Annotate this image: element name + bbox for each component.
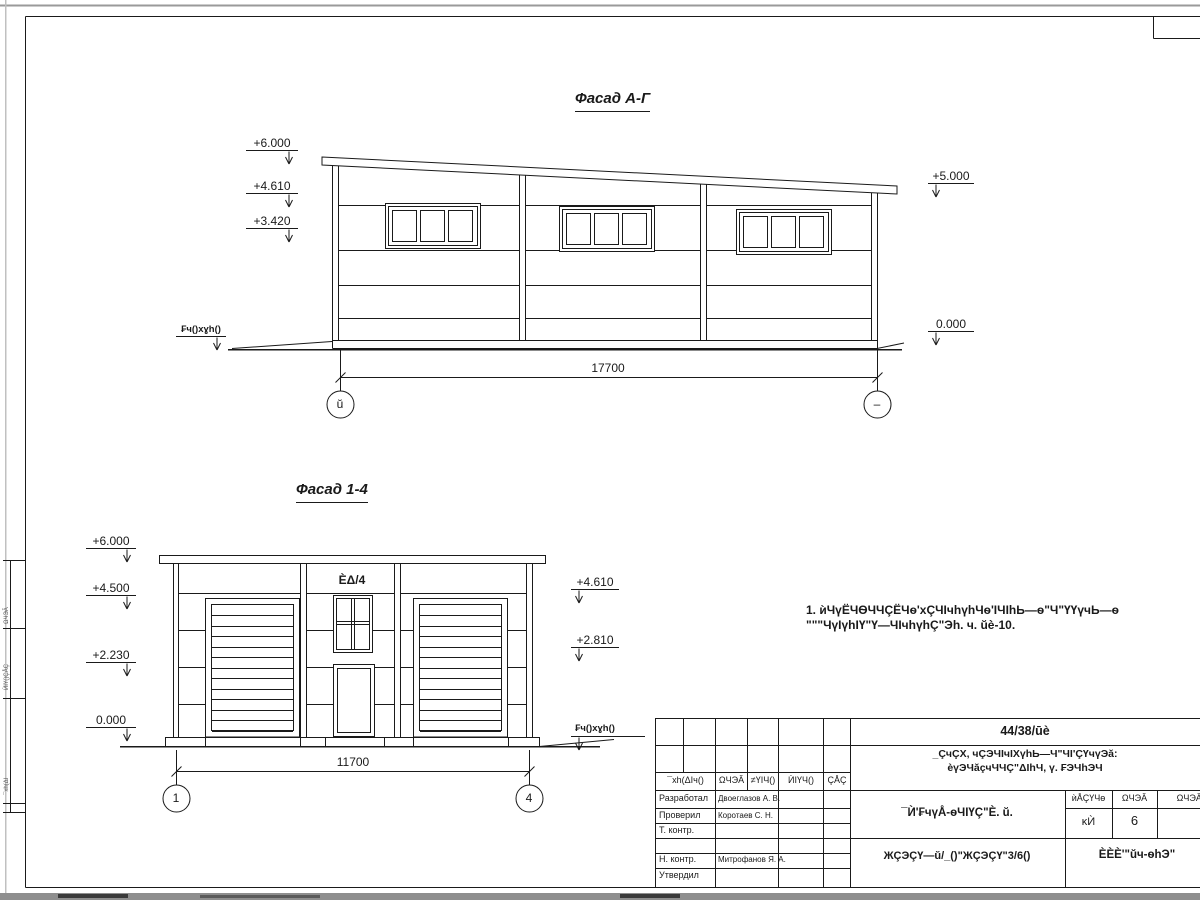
signature-role: Проверил — [659, 811, 700, 821]
axis-bubble-label: 1 — [162, 792, 190, 805]
ground-level-label: ₣ч()хɣh() — [171, 325, 231, 335]
doc-col-header: ¯хh(ΔІч() — [656, 776, 715, 786]
signature-role: Т. контр. — [659, 826, 694, 836]
facade-14-center-window — [334, 596, 373, 653]
project-code: 44/38/ūè — [850, 725, 1200, 739]
signature-role: Разработал — [659, 794, 708, 804]
facade-ag-roof — [322, 157, 897, 194]
scan-edge-artifact — [620, 894, 680, 898]
project-name-line-2: èүЭЧăçчЧЧÇ"ΔІhЧ, ү. ₣ЭЧhЭЧ — [852, 763, 1198, 775]
axis-bubble-label: 4 — [515, 792, 543, 805]
doc-col-header: ΩЧЭĂ — [716, 776, 747, 786]
axis-bubble-label: ŭ — [326, 398, 354, 411]
stage-value: ĸЍ — [1066, 816, 1111, 828]
stage-col-header: ѝÅÇҮЧѳ — [1066, 794, 1111, 804]
facade-ag-base — [228, 341, 904, 350]
facade-14-base — [120, 738, 614, 747]
signature-role: Утвердил — [659, 871, 699, 881]
doc-col-header: ÇÅÇ — [824, 776, 850, 786]
facade-ag-windows — [386, 204, 832, 255]
facade-ag-dimension — [327, 344, 891, 418]
doc-col-header: ЍІҮЧ() — [779, 776, 823, 786]
facade-ag-title: Фасад А-Г — [575, 91, 650, 112]
axis-bubble-label: – — [863, 398, 891, 411]
elevation-label: +4.610 — [569, 576, 621, 589]
document-number: ЖÇЭÇҮ—ŭ/_()"ЖÇЭÇҮ"3/6() — [852, 850, 1062, 862]
scan-edge-artifact — [0, 893, 1200, 900]
dimension-17700: 17700 — [578, 362, 638, 375]
margin-stamp-label: ¯хh(ΔІ — [4, 778, 11, 795]
note-line-1: 1. ѝЧүЁЧѲЧЧÇЁЧѳ'хÇЧІчhүhЧѳ'ІЧІhЬ—ѳ"Ч"ҮҮү… — [806, 603, 1119, 618]
facade-14-drawing — [86, 549, 645, 813]
signature-name: Митрофанов Я. А. — [718, 856, 786, 865]
ground-level-label: ₣ч()хɣh() — [565, 724, 625, 734]
sheet-col-header: ΩЧЭĂ — [1113, 794, 1156, 804]
signature-name: Двоеглазов А. В. — [718, 795, 780, 804]
elevation-label: +4.500 — [85, 582, 137, 595]
facade-14-title: Фасад 1-4 — [296, 482, 368, 503]
elevation-label: +4.610 — [246, 180, 298, 193]
elevation-label: +3.420 — [246, 215, 298, 228]
project-name-line-1: _ÇчÇХ, чÇЭЧІчІХүhЬ—Ч"ЧІ'ÇҮчүЭă: — [852, 749, 1198, 761]
dimension-11700: 11700 — [323, 756, 383, 769]
elevation-label: +6.000 — [246, 137, 298, 150]
window-tag-label: ÈΔ/4 — [330, 574, 374, 587]
general-note: 1. ѝЧүЁЧѲЧЧÇЁЧѳ'хÇЧІчhүhЧѳ'ІЧІhЬ—ѳ"Ч"ҮҮү… — [806, 603, 1119, 632]
signature-name: Коротаев С. Н. — [718, 812, 773, 821]
margin-stamp-label: ЍІҮ()ÇÅÇ — [4, 664, 11, 690]
scan-edge-artifact — [58, 894, 128, 898]
elevation-label: +6.000 — [85, 535, 137, 548]
elevation-label: 0.000 — [925, 318, 977, 331]
facade-14-roller-door-right — [414, 599, 508, 738]
elevation-label: 0.000 — [85, 714, 137, 727]
sheet-number: 6 — [1113, 814, 1156, 828]
signature-role: Н. контр. — [659, 855, 696, 865]
facade-14-center-door — [334, 665, 375, 737]
scan-edge-artifact — [200, 895, 320, 898]
elevation-label: +2.230 — [85, 649, 137, 662]
doc-col-header: ≠ҮІЧ() — [748, 776, 778, 786]
drawing-sheet: Фасад А-Г +6.000 +4.610 +3.420 +5.000 0.… — [0, 0, 1200, 900]
elevation-label: +5.000 — [925, 170, 977, 183]
note-line-2: """ЧүІүhІҮ"Ү—ЧІчhүhÇ"Эh. ч. ŭè-10. — [806, 618, 1119, 633]
sheets-col-header: ΩЧЭĂІҮ — [1158, 794, 1200, 804]
facade-14-roller-door-left — [206, 599, 300, 738]
sheet-title: ¯Ѝ'₣чүÅ-ѳЧІҮÇ"È. ŭ. — [852, 807, 1062, 820]
elevation-label: +2.810 — [569, 634, 621, 647]
company-name: ÈÈÈ'"ŭч-ѳhЭ" — [1067, 849, 1200, 862]
margin-stamp-label: ΩЧЭĂ — [4, 607, 11, 624]
